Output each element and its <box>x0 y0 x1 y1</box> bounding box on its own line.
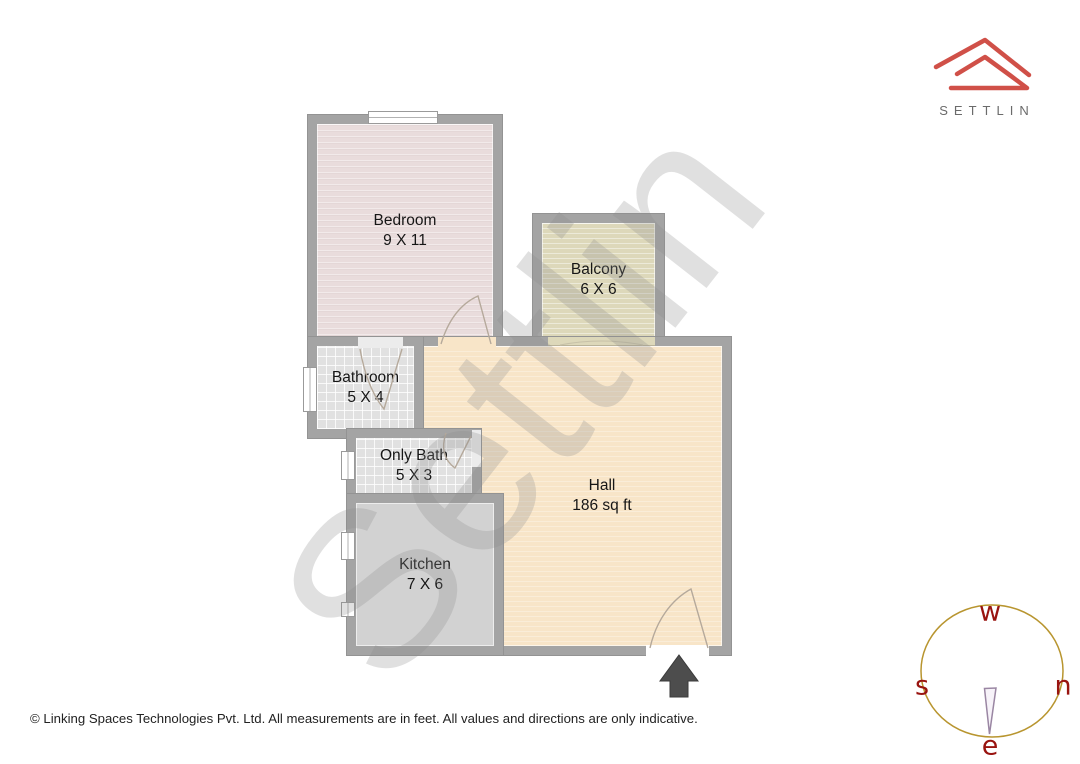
room-label: Kitchen 7 X 6 <box>399 555 451 595</box>
compass-needle-icon <box>985 688 997 734</box>
room-label: Balcony 6 X 6 <box>571 260 626 300</box>
room-bedroom: Bedroom 9 X 11 <box>308 115 502 346</box>
settlin-logo: SETTLIN <box>928 36 1040 118</box>
room-label: Only Bath 5 X 3 <box>380 446 448 486</box>
room-dims: 5 X 4 <box>332 388 399 408</box>
footer-disclaimer: © Linking Spaces Technologies Pvt. Ltd. … <box>30 711 698 726</box>
room-dims: 186 sq ft <box>572 496 631 516</box>
room-dims: 6 X 6 <box>571 280 626 300</box>
door-opening-only-bath <box>472 430 481 467</box>
room-name: Hall <box>572 476 631 496</box>
window-bedroom-top <box>368 111 438 124</box>
compass-letter-e: e <box>982 731 999 762</box>
room-dims: 7 X 6 <box>399 575 451 595</box>
room-balcony: Balcony 6 X 6 <box>533 214 664 346</box>
compass: w s n e <box>915 596 1070 761</box>
window-kitchen-left-1 <box>341 532 355 560</box>
room-name: Kitchen <box>399 555 451 575</box>
logo-wordmark: SETTLIN <box>928 103 1040 118</box>
door-opening-entrance <box>646 645 709 657</box>
room-name: Bedroom <box>374 211 437 231</box>
door-opening-bathroom <box>358 337 403 348</box>
entrance-arrow-icon <box>660 655 698 697</box>
compass-letter-s: s <box>915 671 929 702</box>
window-kitchen-left-2 <box>341 602 355 617</box>
room-label: Bathroom 5 X 4 <box>332 368 399 408</box>
floorplan-page: Settlin SETTLIN Bedroom 9 X 11 Balcony 6… <box>0 0 1080 764</box>
compass-letter-n: n <box>1054 671 1071 702</box>
room-name: Bathroom <box>332 368 399 388</box>
room-kitchen: Kitchen 7 X 6 <box>347 494 503 655</box>
room-only-bath: Only Bath 5 X 3 <box>347 429 481 503</box>
compass-letter-w: w <box>979 597 1001 628</box>
room-label: Hall 186 sq ft <box>572 476 631 516</box>
settlin-house-icon <box>929 36 1039 94</box>
room-bathroom: Bathroom 5 X 4 <box>308 337 423 438</box>
room-name: Only Bath <box>380 446 448 466</box>
balcony-threshold <box>548 337 655 346</box>
room-dims: 9 X 11 <box>374 231 437 251</box>
room-dims: 5 X 3 <box>380 466 448 486</box>
room-label: Bedroom 9 X 11 <box>374 211 437 251</box>
room-name: Balcony <box>571 260 626 280</box>
window-bathroom-left <box>303 367 317 412</box>
window-only-bath-left <box>341 451 355 480</box>
door-opening-bedroom <box>438 337 496 347</box>
